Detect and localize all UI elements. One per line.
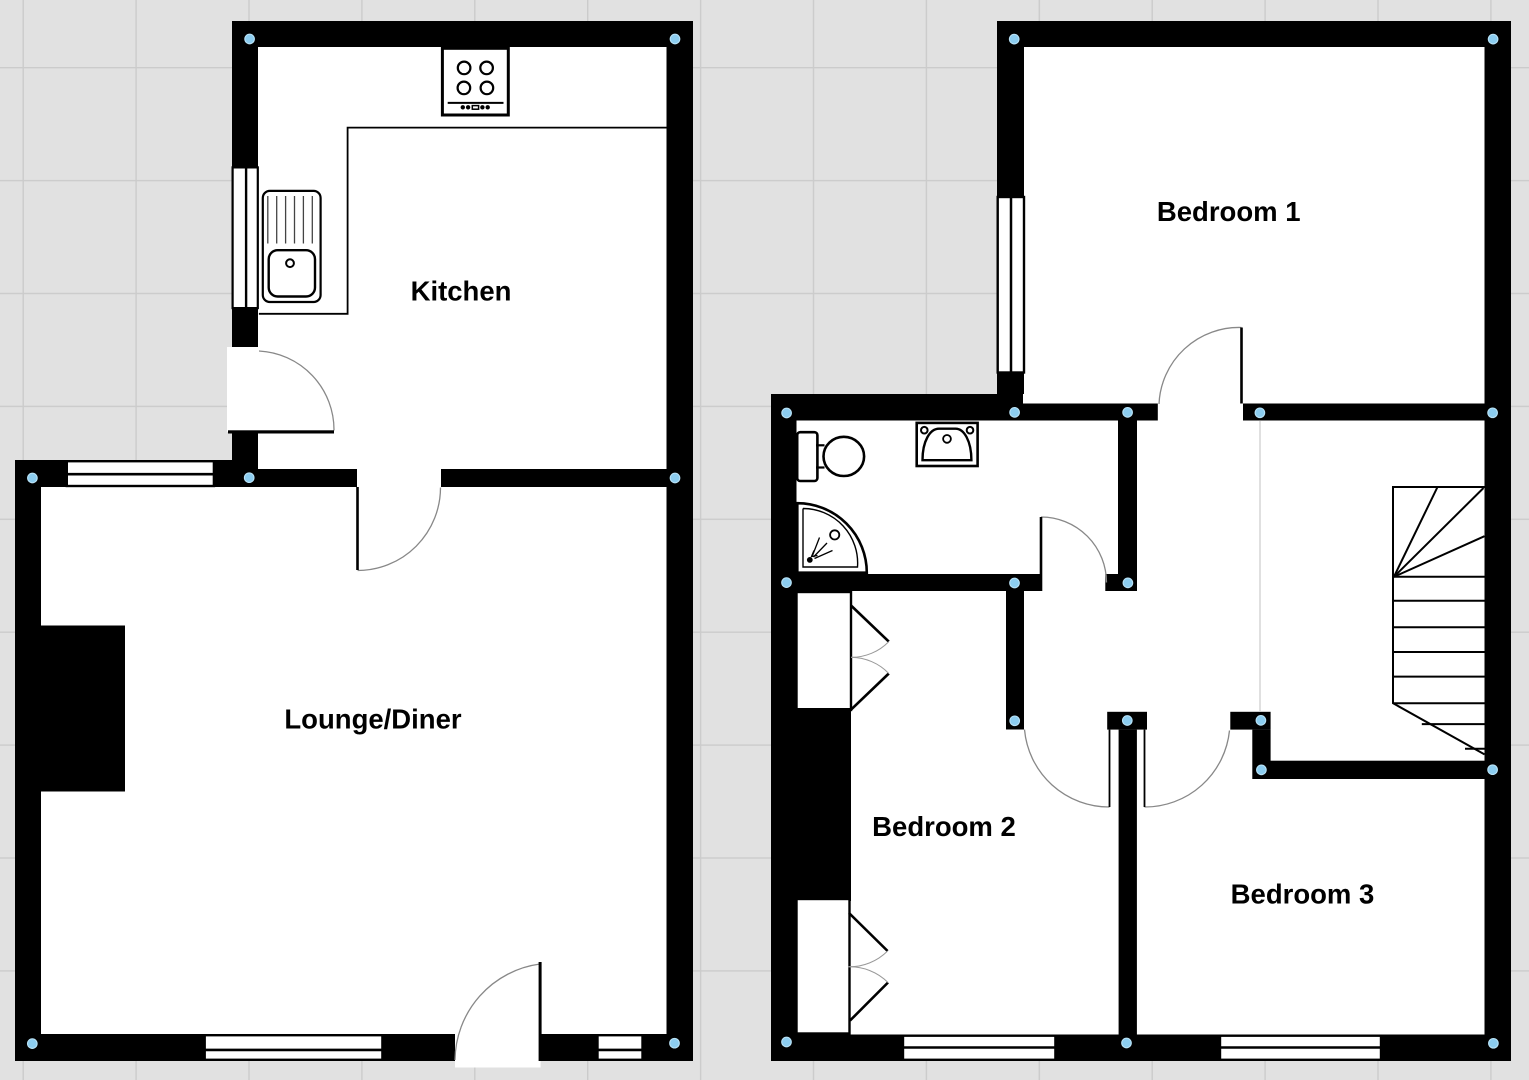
svg-text:Bedroom 3: Bedroom 3 bbox=[1231, 879, 1375, 910]
svg-text:Kitchen: Kitchen bbox=[411, 275, 512, 306]
svg-text:Lounge/Diner: Lounge/Diner bbox=[284, 704, 462, 735]
svg-text:Bedroom 1: Bedroom 1 bbox=[1157, 196, 1301, 227]
svg-text:Bedroom 2: Bedroom 2 bbox=[872, 811, 1016, 842]
